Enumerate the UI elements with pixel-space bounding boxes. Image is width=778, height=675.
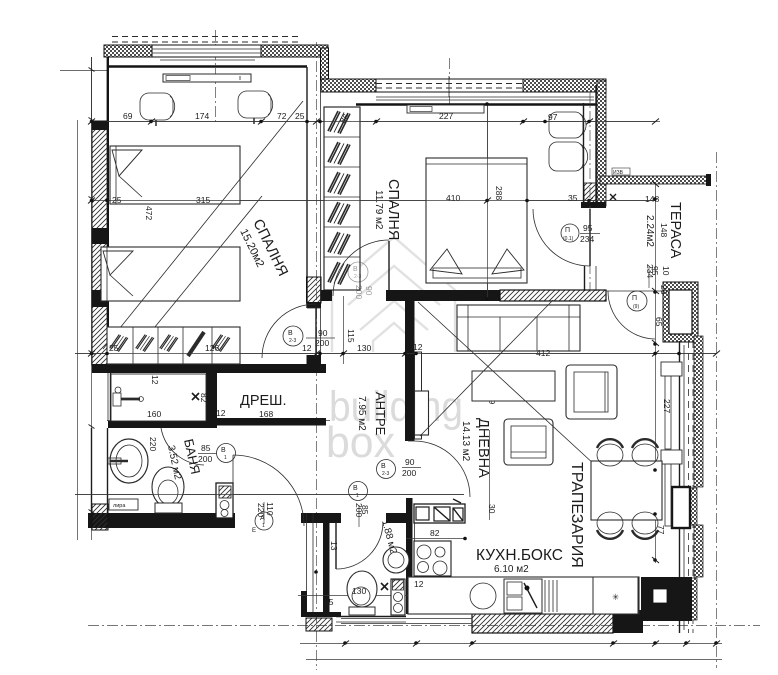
svg-text:В: В: [353, 266, 358, 273]
svg-text:82: 82: [199, 393, 209, 403]
svg-text:200: 200: [315, 338, 329, 348]
svg-text:148: 148: [659, 223, 669, 237]
svg-text:2-3: 2-3: [354, 274, 361, 280]
svg-text:200: 200: [354, 285, 364, 299]
svg-text:14.13 м2: 14.13 м2: [460, 421, 471, 462]
svg-text:65: 65: [654, 317, 664, 327]
svg-text:ДНЕВНА: ДНЕВНА: [475, 418, 491, 478]
svg-text:126: 126: [205, 343, 219, 353]
svg-text:(0.1): (0.1): [563, 236, 574, 242]
svg-text:115: 115: [346, 329, 356, 343]
svg-text:КУХН.БОКС: КУХН.БОКС: [476, 547, 563, 564]
svg-text:220: 220: [256, 503, 266, 517]
svg-text:130: 130: [357, 343, 371, 353]
svg-text:1: 1: [224, 455, 227, 461]
svg-text:12: 12: [216, 408, 226, 418]
svg-text:12: 12: [150, 375, 160, 385]
svg-text:148: 148: [645, 194, 659, 204]
svg-text:220: 220: [148, 437, 158, 451]
svg-text:25: 25: [109, 343, 119, 353]
svg-text:288: 288: [494, 186, 504, 200]
svg-text:200: 200: [402, 468, 416, 478]
svg-text:315: 315: [196, 195, 210, 205]
svg-text:82: 82: [430, 528, 440, 538]
svg-text:90: 90: [318, 328, 328, 338]
svg-text:72: 72: [277, 111, 287, 121]
svg-text:ТРАПЕЗАРИЯ: ТРАПЕЗАРИЯ: [568, 462, 585, 568]
svg-text:160: 160: [147, 409, 161, 419]
svg-text:174: 174: [195, 111, 209, 121]
svg-text:95: 95: [583, 223, 593, 233]
svg-text:П: П: [632, 295, 637, 302]
svg-text:69: 69: [123, 111, 133, 121]
svg-text:410: 410: [446, 193, 460, 203]
svg-text:ДРЕШ.: ДРЕШ.: [240, 393, 286, 409]
svg-text:АНТРЕ: АНТРЕ: [373, 392, 388, 436]
svg-text:6.10 м2: 6.10 м2: [494, 564, 529, 575]
svg-text:Е: Е: [252, 528, 256, 534]
svg-text:35: 35: [568, 193, 578, 203]
svg-text:СПАЛНЯ: СПАЛНЯ: [385, 179, 401, 240]
svg-text:130: 130: [352, 586, 366, 596]
svg-text:85: 85: [201, 443, 211, 453]
svg-text:25: 25: [659, 285, 669, 295]
svg-text:168: 168: [259, 409, 273, 419]
svg-text:1: 1: [262, 523, 265, 529]
svg-text:В: В: [221, 447, 226, 454]
svg-text:234: 234: [645, 264, 655, 278]
svg-text:(9): (9): [633, 304, 639, 310]
svg-text:✳: ✳: [612, 592, 620, 602]
svg-text:12: 12: [414, 579, 424, 589]
svg-text:13: 13: [329, 541, 339, 551]
svg-text:11.79 м2: 11.79 м2: [373, 190, 384, 230]
svg-text:90: 90: [364, 286, 374, 296]
svg-text:234: 234: [580, 234, 594, 244]
svg-text:30: 30: [487, 504, 497, 514]
svg-text:П: П: [565, 227, 570, 234]
svg-text:2.24м2: 2.24м2: [644, 215, 655, 247]
svg-text:227: 227: [439, 111, 453, 121]
svg-text:77: 77: [656, 525, 666, 535]
svg-text:7.95 м2: 7.95 м2: [356, 396, 367, 431]
svg-text:12: 12: [413, 342, 423, 352]
svg-text:97: 97: [548, 112, 558, 122]
svg-text:200: 200: [354, 503, 364, 517]
svg-text:лира: лира: [113, 503, 126, 509]
svg-text:В: В: [288, 330, 293, 337]
svg-text:25: 25: [295, 111, 305, 121]
svg-text:В: В: [353, 485, 358, 492]
svg-text:472: 472: [144, 206, 154, 220]
svg-text:10: 10: [661, 266, 671, 276]
svg-text:25: 25: [112, 195, 122, 205]
svg-text:200: 200: [198, 454, 212, 464]
svg-text:В: В: [381, 463, 386, 470]
svg-text:12: 12: [302, 343, 312, 353]
svg-text:1: 1: [356, 493, 359, 499]
svg-text:25: 25: [324, 597, 334, 607]
svg-text:227: 227: [662, 399, 672, 413]
svg-text:90: 90: [405, 457, 415, 467]
svg-text:412: 412: [536, 348, 550, 358]
svg-text:2-3: 2-3: [382, 471, 389, 477]
svg-text:ИЗВ: ИЗВ: [613, 170, 624, 176]
svg-text:2-3: 2-3: [289, 338, 296, 344]
